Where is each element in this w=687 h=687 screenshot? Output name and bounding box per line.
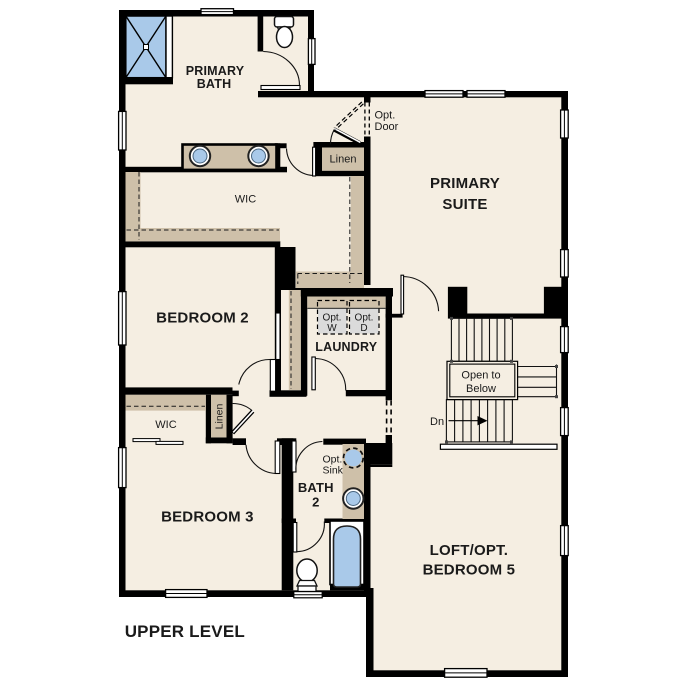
svg-text:Below: Below xyxy=(466,383,496,395)
svg-text:SUITE: SUITE xyxy=(442,196,487,213)
svg-text:WIC: WIC xyxy=(235,194,256,206)
svg-text:Dn: Dn xyxy=(430,416,444,428)
svg-text:Opt.: Opt. xyxy=(355,313,374,324)
svg-text:UPPER LEVEL: UPPER LEVEL xyxy=(125,622,245,641)
svg-text:Opt.: Opt. xyxy=(323,313,342,324)
svg-text:BEDROOM 3: BEDROOM 3 xyxy=(161,509,254,526)
svg-text:Sink: Sink xyxy=(323,465,344,477)
svg-text:Linen: Linen xyxy=(214,404,226,430)
svg-text:LAUNDRY: LAUNDRY xyxy=(315,340,378,354)
svg-text:D: D xyxy=(360,323,367,334)
svg-text:BEDROOM 5: BEDROOM 5 xyxy=(423,562,516,579)
svg-text:Door: Door xyxy=(375,121,399,133)
svg-text:PRIMARY: PRIMARY xyxy=(186,64,245,78)
svg-text:BEDROOM 2: BEDROOM 2 xyxy=(156,310,249,327)
svg-text:Open to: Open to xyxy=(461,370,500,382)
svg-text:Opt.: Opt. xyxy=(375,110,396,122)
svg-text:LOFT/OPT.: LOFT/OPT. xyxy=(430,542,508,559)
svg-text:BATH: BATH xyxy=(197,77,232,91)
svg-text:BATH: BATH xyxy=(298,480,334,495)
svg-text:2: 2 xyxy=(312,495,319,510)
svg-text:WIC: WIC xyxy=(155,419,176,431)
svg-text:W: W xyxy=(327,323,337,334)
svg-text:Linen: Linen xyxy=(330,154,357,166)
svg-text:PRIMARY: PRIMARY xyxy=(430,175,500,192)
